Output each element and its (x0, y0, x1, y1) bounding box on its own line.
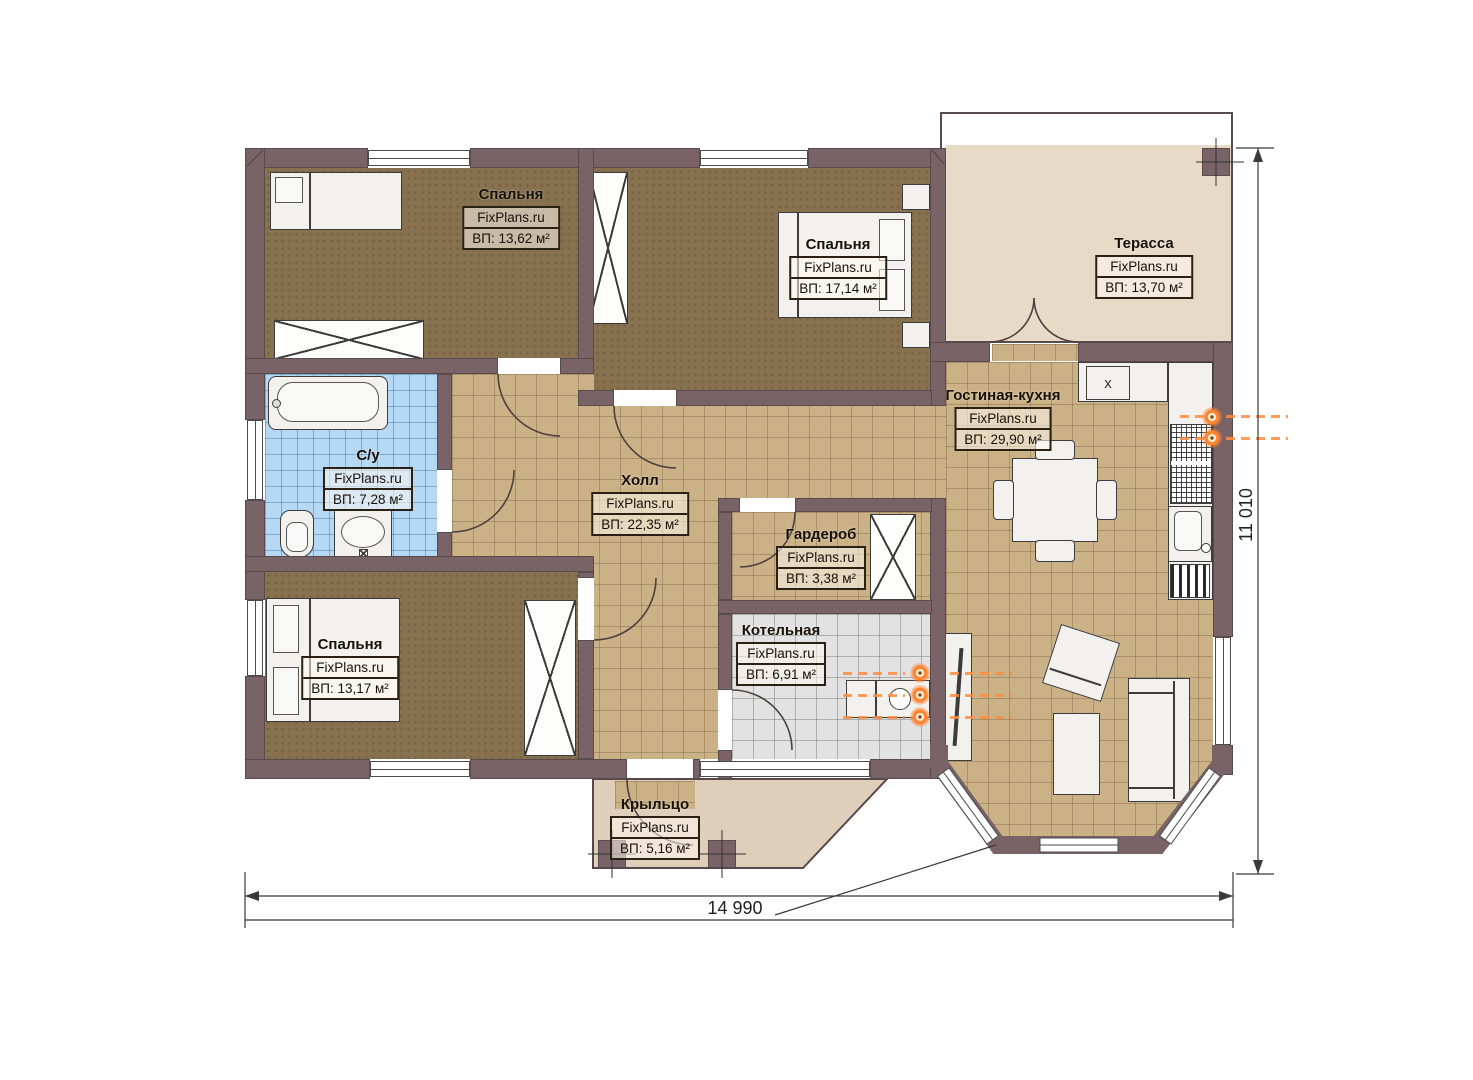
room-label-living-kitchen: Гостиная-кухня FixPlans.ru ВП: 29,90 м² (946, 387, 1061, 451)
dim-arrow (1219, 891, 1233, 901)
dim-arrow (1253, 860, 1263, 874)
room-info-box: FixPlans.ru ВП: 29,90 м² (954, 407, 1052, 451)
room-label-bathroom: С/у FixPlans.ru ВП: 7,28 м² (323, 447, 413, 511)
door-arc-bedroom-top-right (614, 406, 676, 468)
room-name: Спальня (301, 636, 399, 653)
room-info-box: FixPlans.ru ВП: 7,28 м² (323, 467, 413, 511)
dimension-height-label: 11 010 (1236, 488, 1256, 542)
room-area: ВП: 17,14 м² (791, 279, 885, 298)
watermark: FixPlans.ru (303, 658, 397, 679)
floor-plan: x (0, 0, 1473, 1080)
corner-mark (247, 150, 263, 166)
dim-arrow (245, 891, 259, 901)
room-area: ВП: 7,28 м² (325, 490, 411, 509)
room-info-box: FixPlans.ru ВП: 13,70 м² (1095, 255, 1193, 299)
watermark: FixPlans.ru (778, 548, 864, 569)
room-name: Холл (591, 472, 689, 489)
watermark: FixPlans.ru (612, 818, 698, 839)
door-arc-bedroom-bottom (594, 578, 656, 640)
room-area: ВП: 13,70 м² (1097, 278, 1191, 297)
corner-mark (932, 150, 944, 164)
watermark: FixPlans.ru (464, 208, 558, 229)
room-info-box: FixPlans.ru ВП: 6,91 м² (736, 642, 826, 686)
room-label-bedroom-bottom-left: Спальня FixPlans.ru ВП: 13,17 м² (301, 636, 399, 700)
room-info-box: FixPlans.ru ВП: 3,38 м² (776, 546, 866, 590)
room-name: С/у (323, 447, 413, 464)
watermark: FixPlans.ru (325, 469, 411, 490)
door-arc-bathroom (452, 470, 514, 532)
room-name: Терасса (1095, 235, 1193, 252)
room-info-box: FixPlans.ru ВП: 13,62 м² (462, 206, 560, 250)
room-area: ВП: 3,38 м² (778, 569, 864, 588)
watermark: FixPlans.ru (956, 409, 1050, 430)
room-info-box: FixPlans.ru ВП: 5,16 м² (610, 816, 700, 860)
dimension-width-label: 14 990 (707, 898, 762, 918)
watermark: FixPlans.ru (1097, 257, 1191, 278)
room-area: ВП: 6,91 м² (738, 665, 824, 684)
room-area: ВП: 13,17 м² (303, 679, 397, 698)
room-name: Спальня (462, 186, 560, 203)
room-area: ВП: 22,35 м² (593, 515, 687, 534)
room-area: ВП: 13,62 м² (464, 229, 558, 248)
room-label-hall: Холл FixPlans.ru ВП: 22,35 м² (591, 472, 689, 536)
room-label-bedroom-top-left: Спальня FixPlans.ru ВП: 13,62 м² (462, 186, 560, 250)
room-label-porch: Крыльцо FixPlans.ru ВП: 5,16 м² (610, 796, 700, 860)
door-arc-terrace-right-leaf (1034, 298, 1078, 342)
room-name: Спальня (789, 236, 887, 253)
watermark: FixPlans.ru (593, 494, 687, 515)
room-name: Котельная (736, 622, 826, 639)
watermark: FixPlans.ru (738, 644, 824, 665)
bay-window-right (1160, 768, 1221, 844)
room-info-box: FixPlans.ru ВП: 13,17 м² (301, 656, 399, 700)
room-name: Крыльцо (610, 796, 700, 813)
room-label-bedroom-top-right: Спальня FixPlans.ru ВП: 17,14 м² (789, 236, 887, 300)
door-arc-terrace-left-leaf (990, 298, 1034, 342)
room-name: Гардероб (776, 526, 866, 543)
room-info-box: FixPlans.ru ВП: 22,35 м² (591, 492, 689, 536)
radiator-point (910, 663, 930, 683)
watermark: FixPlans.ru (791, 258, 885, 279)
dimension-leader (775, 845, 996, 915)
dim-arrow (1253, 148, 1263, 162)
room-area: ВП: 29,90 м² (956, 430, 1050, 449)
radiator-point (1202, 407, 1222, 427)
room-label-terrace: Терасса FixPlans.ru ВП: 13,70 м² (1095, 235, 1193, 299)
door-arc-boiler (732, 690, 792, 750)
bay-window-bottom (1040, 838, 1118, 852)
room-label-wardrobe: Гардероб FixPlans.ru ВП: 3,38 м² (776, 526, 866, 590)
linework-layer: 14 990 11 010 (0, 0, 1473, 1080)
door-arc-bedroom-top-left (498, 374, 560, 436)
bay-window-left (938, 768, 999, 844)
room-area: ВП: 5,16 м² (612, 839, 698, 858)
radiator-point (1202, 428, 1222, 448)
room-label-boiler: Котельная FixPlans.ru ВП: 6,91 м² (736, 622, 826, 686)
room-name: Гостиная-кухня (946, 387, 1061, 404)
radiator-point (910, 685, 930, 705)
room-info-box: FixPlans.ru ВП: 17,14 м² (789, 256, 887, 300)
radiator-point (910, 707, 930, 727)
